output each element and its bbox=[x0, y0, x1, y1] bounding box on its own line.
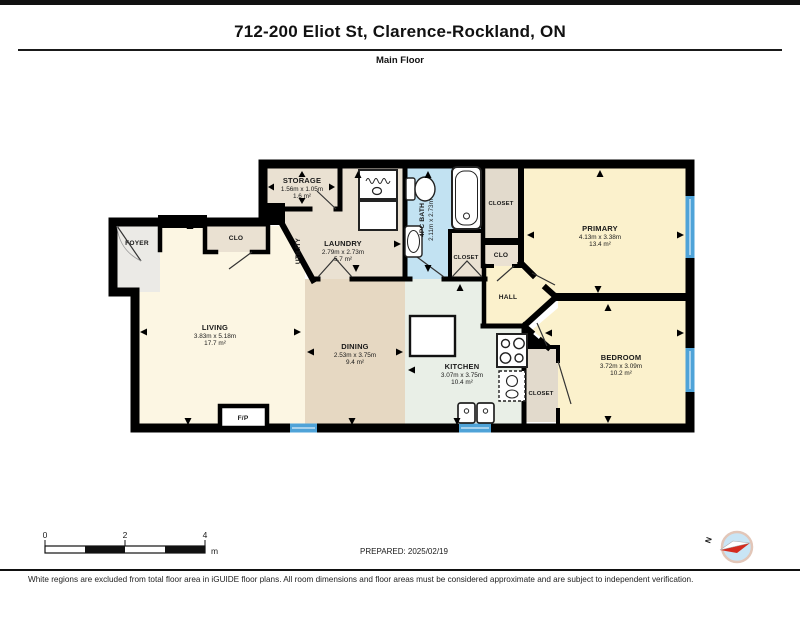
kitchen-label: KITCHEN bbox=[445, 362, 480, 371]
scale-bar: 0 2 4 m bbox=[43, 530, 218, 556]
bath-label: 4PC BATH bbox=[419, 203, 426, 237]
floor-plan-canvas: STORAGE 1.56m x 1.05m 1.6 m² LAUNDRY 2.7… bbox=[0, 0, 800, 618]
room-closet-bedroom bbox=[524, 347, 558, 422]
footer-divider bbox=[0, 569, 800, 571]
wall-filler-1 bbox=[158, 215, 207, 228]
bedroom-label: BEDROOM bbox=[601, 353, 642, 362]
primary-label: PRIMARY bbox=[582, 224, 618, 233]
floor-plan-page: 712-200 Eliot St, Clarence-Rockland, ON … bbox=[0, 0, 800, 618]
storage-label: STORAGE bbox=[283, 176, 321, 185]
dryer bbox=[359, 170, 397, 199]
living-label: LIVING bbox=[202, 323, 228, 332]
washer bbox=[359, 201, 397, 230]
stove bbox=[497, 334, 527, 367]
clo-foyer-label: CLO bbox=[229, 235, 244, 242]
laundry-dims: 2.79m x 2.73m bbox=[322, 249, 364, 256]
toilet bbox=[406, 177, 435, 201]
closet-bedroom-label: CLOSET bbox=[528, 391, 553, 397]
bedroom-dims: 3.72m x 3.09m bbox=[600, 363, 642, 370]
fireplace-label: F/P bbox=[238, 415, 249, 422]
footer-disclaimer: White regions are excluded from total fl… bbox=[28, 575, 772, 584]
closet-primary-label: CLOSET bbox=[488, 201, 513, 207]
bathtub bbox=[452, 167, 481, 229]
compass-icon: N bbox=[703, 532, 752, 562]
dishwasher bbox=[499, 371, 525, 401]
primary-area: 13.4 m² bbox=[589, 241, 611, 248]
kitchen-island bbox=[410, 316, 455, 356]
laundry-area: 5.7 m² bbox=[334, 256, 352, 263]
hall-label: HALL bbox=[499, 294, 517, 301]
dining-dims: 2.53m x 3.75m bbox=[334, 352, 376, 359]
compass-north-label: N bbox=[703, 536, 714, 545]
dining-area: 9.4 m² bbox=[346, 359, 364, 366]
kitchen-dims: 3.07m x 3.75m bbox=[441, 372, 483, 379]
scale-tick-0: 0 bbox=[43, 530, 48, 540]
primary-dims: 4.13m x 3.38m bbox=[579, 234, 621, 241]
utility-label: UTILITY bbox=[295, 237, 302, 264]
bedroom-area: 10.2 m² bbox=[610, 370, 632, 377]
storage-area: 1.6 m² bbox=[293, 193, 311, 200]
scale-unit: m bbox=[211, 546, 218, 556]
room-foyer bbox=[113, 222, 160, 292]
kitchen-area: 10.4 m² bbox=[451, 379, 473, 386]
laundry-label: LAUNDRY bbox=[324, 239, 362, 248]
scale-tick-2: 2 bbox=[123, 530, 128, 540]
prepared-date: PREPARED: 2025/02/19 bbox=[360, 547, 448, 556]
clo-hall-label: CLO bbox=[494, 252, 509, 259]
scale-tick-4: 4 bbox=[203, 530, 208, 540]
dining-label: DINING bbox=[341, 342, 368, 351]
foyer-label: FOYER bbox=[125, 240, 149, 247]
closet-linen-label: CLOSET bbox=[453, 255, 478, 261]
living-area: 17.7 m² bbox=[204, 340, 226, 347]
bath-dims: 2.11m x 2.73m bbox=[428, 199, 435, 241]
storage-dims: 1.56m x 1.05m bbox=[281, 186, 323, 193]
living-dims: 3.83m x 5.18m bbox=[194, 333, 236, 340]
